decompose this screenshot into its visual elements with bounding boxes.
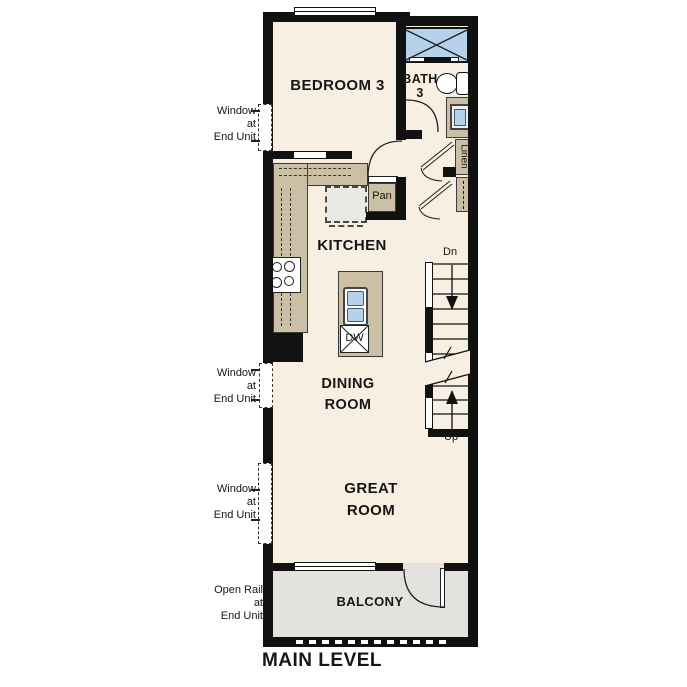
open-rail-note: Open Rail at End Unit: [173, 584, 263, 623]
linen-label: Linen: [459, 140, 470, 174]
bedroom-door-arc: [368, 141, 402, 177]
window-note-2: Window at End Unit: [168, 367, 256, 406]
stairs-up-arrow: [446, 390, 458, 430]
balcony-door-arc: [404, 569, 444, 607]
closet-door-leaf: [419, 181, 452, 209]
linen-door-leaf: [421, 142, 454, 170]
leader-tick: [251, 110, 260, 112]
leader-tick: [251, 519, 260, 521]
great-room-label: GREAT ROOM: [329, 478, 413, 522]
main-level-title: MAIN LEVEL: [242, 650, 402, 672]
balcony-label: BALCONY: [333, 594, 407, 609]
bedroom-label: BEDROOM 3: [280, 77, 395, 94]
kitchen-label: KITCHEN: [308, 237, 396, 254]
stairs-down-label: Dn: [443, 246, 457, 258]
stairs-down-arrow: [446, 265, 458, 310]
bath-door-arc: [406, 100, 438, 132]
linen-door-arc: [421, 168, 442, 181]
stair-treads: [433, 264, 468, 414]
dining-label: DINING ROOM: [314, 374, 382, 416]
floor-plan: BEDROOM 3 BATH 3 KITCHEN DINING ROOM GRE…: [0, 0, 687, 687]
window-note-1: Window at End Unit: [168, 105, 256, 144]
leader-tick: [251, 489, 260, 491]
stairs-up-label: Up: [444, 431, 458, 443]
shower-x: [406, 30, 467, 60]
leader-tick: [251, 399, 260, 401]
bath-label: BATH 3: [399, 72, 441, 100]
window-note-3: Window at End Unit: [168, 483, 256, 522]
stair-break: [425, 347, 470, 386]
pantry-label: Pan: [369, 190, 395, 202]
dishwasher-label: DW: [340, 332, 369, 344]
closet-door-arc: [419, 207, 440, 219]
leader-tick: [251, 140, 260, 142]
leader-tick: [251, 369, 260, 371]
